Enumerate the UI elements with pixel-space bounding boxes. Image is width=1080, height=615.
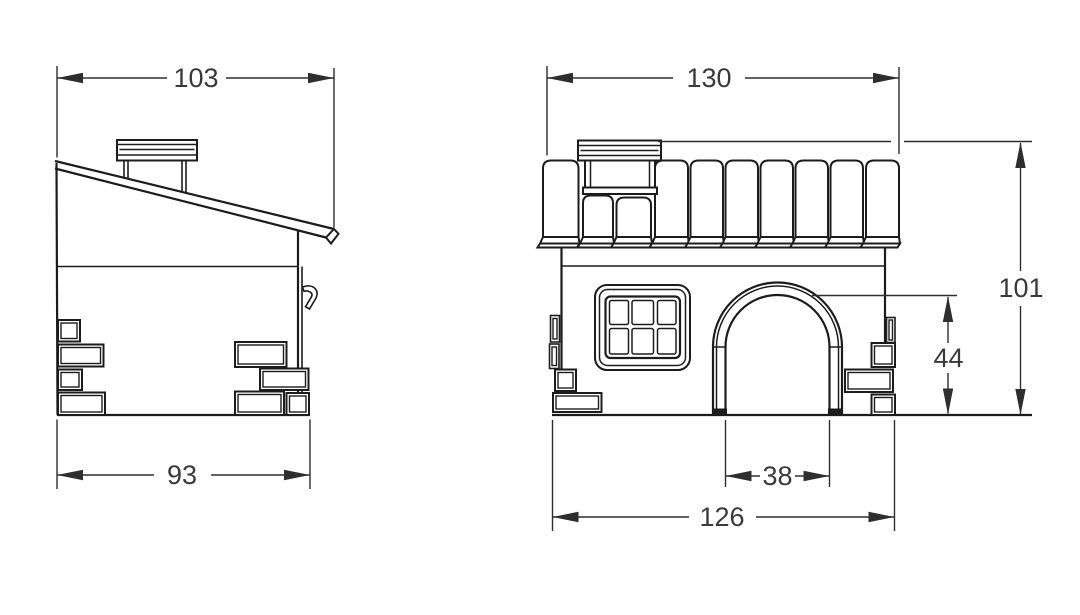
front-chimney (578, 141, 661, 195)
roof-tile (755, 161, 794, 248)
arrowhead-right-icon (804, 471, 830, 481)
dim-front-door-width: 38 (726, 420, 830, 491)
side-wall-latch (303, 286, 318, 309)
arrowhead-down-icon (1015, 389, 1025, 415)
side-view: 103 93 (55, 63, 339, 490)
arrowhead-left-icon (57, 470, 83, 480)
brick (235, 342, 287, 367)
arrowhead-down-icon (943, 389, 953, 415)
arrowhead-up-icon (943, 296, 953, 322)
dim-front-base-width: 126 (553, 420, 895, 532)
roof-tile (685, 161, 724, 248)
dim-side-base-width: 93 (57, 420, 310, 491)
arrowhead-left-icon (553, 512, 579, 522)
brick (551, 316, 560, 343)
arrowhead-right-icon (284, 470, 310, 480)
roof-tile (538, 161, 580, 248)
roof-tile (578, 196, 615, 248)
technical-drawing-page: 103 93 (0, 0, 1080, 615)
roof-tile (611, 198, 652, 248)
door-jamb-foot (828, 409, 843, 415)
front-door-arch (712, 283, 843, 415)
arrowhead-right-icon (873, 73, 899, 83)
house-dimension-drawing: 103 93 (0, 0, 1080, 615)
side-roof (55, 161, 339, 244)
dim-label-front-door-width: 38 (762, 461, 792, 491)
roof-tile (720, 161, 759, 248)
brick (887, 318, 896, 343)
arrowhead-up-icon (1015, 142, 1025, 168)
front-view: 130 101 44 38 (538, 63, 1044, 532)
side-bricks (58, 320, 309, 415)
arrowhead-left-icon (547, 73, 573, 83)
dim-label-front-base-width: 126 (699, 502, 744, 532)
arrowhead-right-icon (308, 73, 334, 83)
roof-tile (861, 161, 901, 248)
arrowhead-left-icon (57, 73, 83, 83)
dim-label-front-roof-width: 130 (686, 63, 731, 93)
dim-label-side-base-width: 93 (167, 460, 197, 490)
roof-tile (825, 161, 864, 248)
arrowhead-right-icon (869, 512, 895, 522)
front-window (595, 285, 690, 370)
door-jamb-foot (712, 409, 727, 415)
front-chimney-body (585, 161, 655, 188)
arrowhead-left-icon (726, 471, 752, 481)
side-roof-end-cap (326, 229, 339, 244)
roof-tile (790, 161, 829, 248)
dim-label-front-door-height: 44 (933, 343, 963, 373)
dim-label-front-overall-height: 101 (998, 273, 1043, 303)
front-chimney-lip (583, 188, 657, 195)
dim-label-side-overall-width: 103 (173, 63, 218, 93)
